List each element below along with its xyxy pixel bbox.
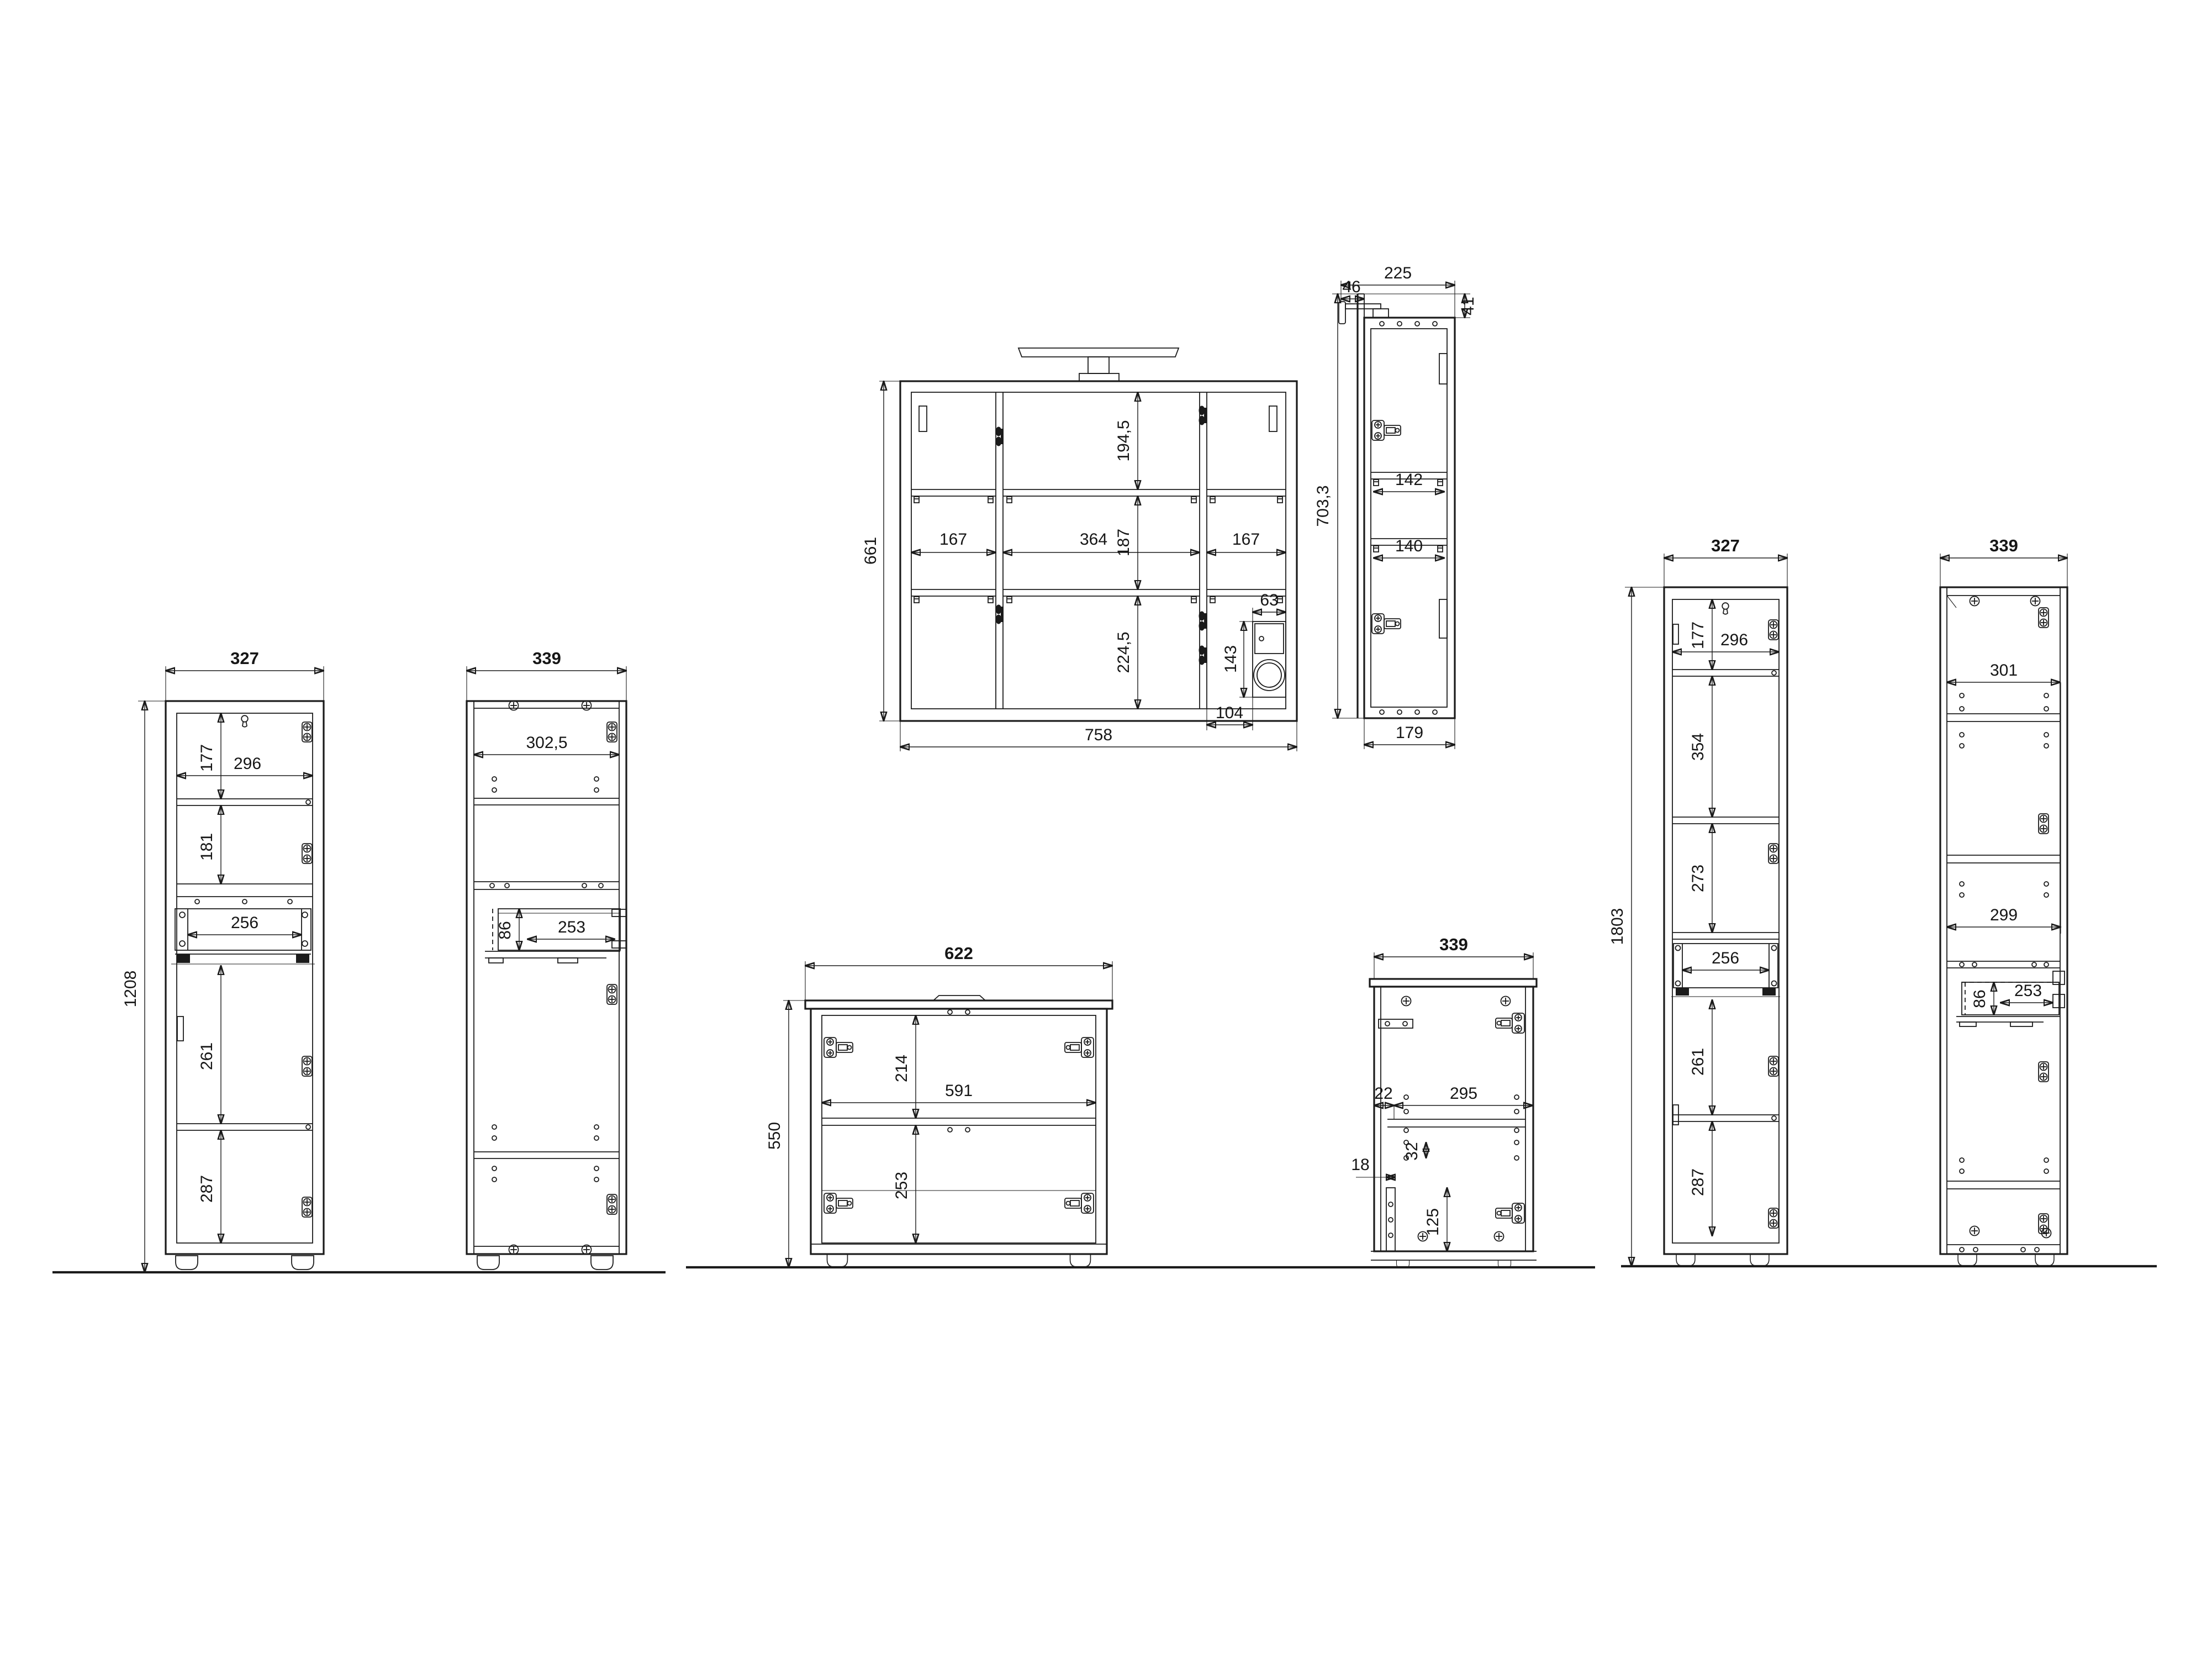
dim-drawer-d: 253 <box>2014 982 2042 1000</box>
view-xtall-cabinet-side: 339 301 299 86 253 <box>1940 536 2067 1266</box>
screw-icon <box>1495 1232 1504 1241</box>
shelf-clip-icon <box>1438 480 1443 486</box>
dim-row-bottom: 224,5 <box>1115 631 1133 673</box>
dim-height: 550 <box>766 1122 784 1150</box>
shelf-clip-icon <box>1374 480 1379 486</box>
dim-sec1: 177 <box>198 744 216 772</box>
mirror-front-light <box>1018 348 1179 381</box>
view-mirror-cabinet-side: 225 46 41 703,3 142 140 179 <box>1314 264 1477 749</box>
hinge-icon <box>824 1037 853 1057</box>
hinge-plate-icon <box>2039 814 2049 834</box>
view-xtall-cabinet-front: 327 1803 177 296 354 273 256 261 287 <box>1608 536 1787 1266</box>
dim-sec4: 261 <box>1689 1048 1707 1076</box>
dim-hole-gap: 32 <box>1403 1142 1421 1160</box>
dim-height: 703,3 <box>1314 485 1332 526</box>
hinge-plate-icon <box>2039 1214 2049 1234</box>
shelf-clip-icon <box>1210 497 1215 503</box>
foot-icon <box>1676 1254 1695 1266</box>
shelf-clip-icon <box>914 597 919 603</box>
technical-drawing: 661 758 167 364 167 194,5 187 224,5 63 1… <box>0 0 2212 1659</box>
dim-width: 339 <box>532 649 561 668</box>
dim-overhang: 41 <box>1459 297 1477 315</box>
hinge-icon <box>1496 1013 1524 1033</box>
xtall-front-body <box>1664 587 1787 1254</box>
dim-width: 327 <box>1711 536 1740 555</box>
dim-sec3: 273 <box>1689 865 1707 892</box>
shelf-clip-icon <box>1007 497 1012 503</box>
foot-icon <box>1958 1254 1977 1266</box>
hinge-plate-icon <box>302 1056 312 1076</box>
dim-sec2: 181 <box>198 833 216 861</box>
dim-inner-top: 301 <box>1990 661 2018 680</box>
dim-sec2: 253 <box>893 1172 911 1199</box>
hinge-icon <box>1372 614 1401 634</box>
dim-socket-h: 143 <box>1222 645 1240 673</box>
shelf-clip-icon <box>1191 497 1196 503</box>
tall-side-body <box>467 701 626 1254</box>
dim-col-left: 167 <box>939 530 967 549</box>
hinge-plate-icon <box>302 844 312 863</box>
dim-gap-front: 22 <box>1374 1084 1392 1103</box>
vanity-front-body <box>805 996 1112 1254</box>
view-tall-cabinet-side: 339 302,5 86 253 <box>467 649 626 1270</box>
screw-icon <box>1970 597 1979 606</box>
furniture-dimension-sheet: 661 758 167 364 167 194,5 187 224,5 63 1… <box>0 0 2212 1659</box>
dim-sec3: 261 <box>198 1042 216 1070</box>
dim-height: 1208 <box>122 971 140 1008</box>
foot-icon <box>292 1256 314 1270</box>
xtall-side-dimensions: 339 301 299 86 253 <box>1940 536 2067 1015</box>
screw-icon <box>2031 597 2040 606</box>
tall-front-dimensions: 327 1208 177 296 181 256 261 287 <box>122 649 324 1272</box>
screw-icon <box>1970 1226 1979 1236</box>
xtall-front-dimensions: 327 1803 177 296 354 273 256 261 287 <box>1608 536 1787 1266</box>
dim-drawer-w: 256 <box>231 914 258 932</box>
dim-height: 1803 <box>1608 908 1627 945</box>
dim-inner-w: 302,5 <box>526 734 567 752</box>
view-tall-cabinet-front: 327 1208 177 296 181 256 261 287 <box>122 649 324 1272</box>
hinge-plate-icon <box>607 722 617 742</box>
foot-icon <box>477 1256 499 1270</box>
ground-lines <box>52 1266 2157 1272</box>
keyhole-icon <box>241 715 248 727</box>
dim-drawer-h: 86 <box>496 921 514 939</box>
dim-socket-w: 63 <box>1260 591 1278 609</box>
foot-icon <box>1070 1254 1091 1267</box>
screw-icon <box>1402 997 1411 1006</box>
screw-icon <box>509 1245 519 1255</box>
foot-icon <box>176 1256 198 1270</box>
dim-drawer-d: 253 <box>558 918 585 936</box>
dim-width: 622 <box>944 944 973 963</box>
view-mirror-cabinet-front: 661 758 167 364 167 194,5 187 224,5 63 1… <box>862 348 1297 751</box>
shelf-clip-icon <box>988 497 993 503</box>
dim-socket-off: 104 <box>1216 704 1243 722</box>
dim-sec1: 214 <box>893 1055 911 1082</box>
screw-icon <box>509 701 519 710</box>
base-side-dimensions: 339 22 295 32 18 125 <box>1351 935 1533 1251</box>
dim-height: 661 <box>862 537 880 565</box>
dim-row-mid: 187 <box>1115 529 1133 556</box>
hinge-icon <box>824 1193 853 1213</box>
dim-lamp: 46 <box>1342 278 1360 296</box>
dim-rail-w: 18 <box>1351 1156 1369 1174</box>
hinge-plate-icon <box>2039 1062 2049 1082</box>
dim-shelf-d: 295 <box>1450 1084 1477 1103</box>
view-base-cabinet-side: 339 22 295 32 18 125 <box>1351 935 1537 1268</box>
dim-inner-w: 296 <box>1720 631 1748 649</box>
hinge-icon <box>1065 1193 1094 1213</box>
shelf-clip-icon <box>914 497 919 503</box>
shelf-clip-icon <box>1438 546 1443 552</box>
dim-width: 339 <box>1989 536 2018 555</box>
shelf-clip-icon <box>1210 597 1215 603</box>
hinge-icon <box>1372 420 1401 440</box>
keyhole-icon <box>1722 603 1729 614</box>
tall-side-dimensions: 339 302,5 86 253 <box>467 649 626 950</box>
view-vanity-cabinet-front: 622 550 214 591 253 <box>766 944 1112 1267</box>
dim-col-mid: 364 <box>1080 530 1107 549</box>
dim-inner-w: 591 <box>945 1082 973 1100</box>
hinge-icon <box>996 605 1004 624</box>
mirror-side-body <box>1339 294 1455 718</box>
dim-sec1: 177 <box>1689 622 1707 649</box>
screw-icon <box>1501 997 1511 1006</box>
dim-shelf-top: 142 <box>1395 471 1423 489</box>
hinge-plate-icon <box>302 1197 312 1217</box>
hinge-icon <box>996 427 1004 446</box>
shelf-clip-icon <box>1277 497 1282 503</box>
hinge-plate-icon <box>2039 608 2049 628</box>
dim-width: 339 <box>1439 935 1468 954</box>
dim-rail-h: 125 <box>1424 1208 1442 1236</box>
dim-row-top: 194,5 <box>1115 420 1133 461</box>
dim-inner-mid: 299 <box>1990 906 2018 924</box>
hinge-plate-icon <box>302 722 312 742</box>
dim-drawer-w: 256 <box>1712 949 1739 967</box>
shelf-clip-icon <box>1374 546 1379 552</box>
hinge-plate-icon <box>607 1194 617 1214</box>
shelf-clip-icon <box>1007 597 1012 603</box>
mirror-front-dimensions: 661 758 167 364 167 194,5 187 224,5 63 1… <box>862 381 1297 751</box>
mirror-side-dimensions: 225 46 41 703,3 142 140 179 <box>1314 264 1477 749</box>
hinge-icon <box>1496 1203 1524 1223</box>
hinge-plate-icon <box>1768 1056 1778 1076</box>
hinge-plate-icon <box>1768 844 1778 863</box>
dim-sec4: 287 <box>198 1175 216 1203</box>
vanity-front-dimensions: 622 550 214 591 253 <box>766 944 1112 1267</box>
shelf-clip-icon <box>1191 597 1196 603</box>
screw-icon <box>582 1245 592 1255</box>
mirror-front-socket-box <box>1253 622 1286 697</box>
shelf-clip-icon <box>988 597 993 603</box>
dim-width: 758 <box>1085 726 1112 744</box>
dim-sec2: 354 <box>1689 733 1707 761</box>
tall-front-body <box>166 701 324 1254</box>
dim-width: 327 <box>230 649 259 668</box>
foot-icon <box>591 1256 613 1270</box>
dim-drawer-h: 86 <box>1971 989 1989 1008</box>
foot-icon <box>827 1254 848 1267</box>
foot-icon <box>2035 1254 2054 1266</box>
dim-sec5: 287 <box>1689 1168 1707 1196</box>
foot-icon <box>1750 1254 1769 1266</box>
dim-inner-w: 296 <box>234 755 261 773</box>
hinge-plate-icon <box>1768 620 1778 640</box>
hinge-icon <box>1065 1037 1094 1057</box>
dim-depth-body: 179 <box>1396 724 1423 742</box>
dim-shelf-bottom: 140 <box>1395 537 1423 555</box>
dim-col-right: 167 <box>1232 530 1260 549</box>
screw-icon <box>2042 1229 2051 1238</box>
dim-depth: 225 <box>1384 264 1412 282</box>
screw-icon <box>582 701 592 710</box>
hinge-plate-icon <box>607 984 617 1004</box>
hinge-plate-icon <box>1768 1208 1778 1228</box>
